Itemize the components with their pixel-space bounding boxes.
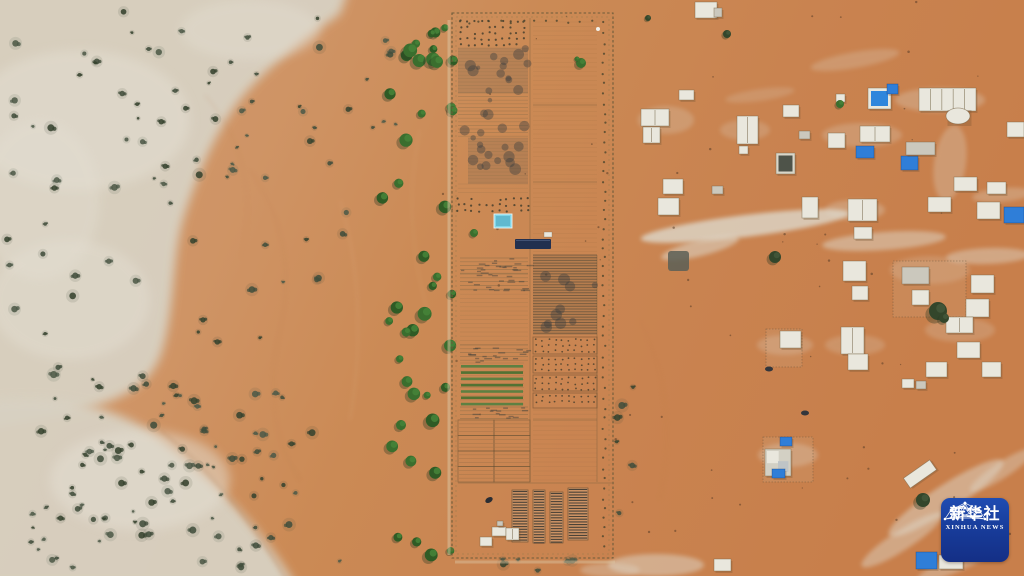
building-w2 (641, 109, 671, 128)
building-w2 (506, 528, 521, 542)
building-w (966, 299, 991, 319)
building-w (1007, 122, 1024, 139)
farm-field-darkpatch (468, 138, 528, 184)
farm-field-rowsdark (533, 255, 598, 335)
building-w (926, 362, 949, 379)
building-d (668, 251, 689, 271)
building-w (977, 202, 1002, 221)
building-w (843, 261, 868, 283)
building-w (783, 105, 801, 119)
building-w (912, 290, 931, 307)
building-w (971, 275, 996, 295)
nursery-bed (568, 488, 588, 540)
xinhua-logo-english-text: XINHUA NEWS (946, 525, 1005, 532)
building-w2 (643, 127, 662, 145)
building-w2 (946, 317, 975, 335)
building-b (856, 146, 876, 160)
building-w (957, 342, 982, 360)
building-w (780, 331, 803, 350)
building-w (854, 227, 874, 241)
building-w2 (848, 199, 879, 223)
building-w (928, 197, 953, 214)
building-b (901, 156, 920, 172)
building-g (902, 267, 931, 286)
building-w (848, 354, 870, 372)
building-w (987, 182, 1008, 196)
building-g (906, 142, 937, 157)
building-w2 (737, 116, 760, 146)
building-w (802, 197, 820, 220)
building-g (916, 381, 928, 391)
building-b (887, 84, 900, 96)
farm-field-darkpatch (458, 45, 531, 95)
building-w (492, 527, 508, 538)
building-w (954, 177, 979, 193)
building-wl (919, 88, 978, 113)
building-w (658, 198, 681, 217)
vehicle (765, 367, 773, 372)
building-w (480, 537, 494, 548)
vehicle (801, 411, 809, 416)
building-w2 (860, 126, 892, 144)
building-w (679, 90, 696, 102)
xinhua-news-logo: 新华社 XINHUA NEWS (941, 498, 1009, 562)
building-w (739, 146, 750, 156)
xinhua-network-dome-icon (941, 500, 989, 522)
building-b (1004, 207, 1024, 225)
building-w (663, 179, 685, 196)
desert-scene (0, 0, 1024, 576)
building-b (780, 437, 794, 448)
nursery-bed (533, 490, 545, 543)
building-g (799, 131, 812, 141)
building-dc (776, 153, 797, 176)
nursery-bed (550, 492, 563, 543)
building-w (828, 133, 847, 150)
building-b (916, 552, 939, 571)
building-w (714, 559, 733, 573)
building-wr (946, 108, 972, 126)
building-w2 (841, 327, 866, 356)
building-b (772, 469, 787, 480)
building-w (902, 379, 916, 390)
aerial-photo: 新华社 XINHUA NEWS (0, 0, 1024, 576)
building-w (852, 286, 870, 302)
building-w (982, 362, 1003, 379)
building-g (712, 186, 725, 196)
